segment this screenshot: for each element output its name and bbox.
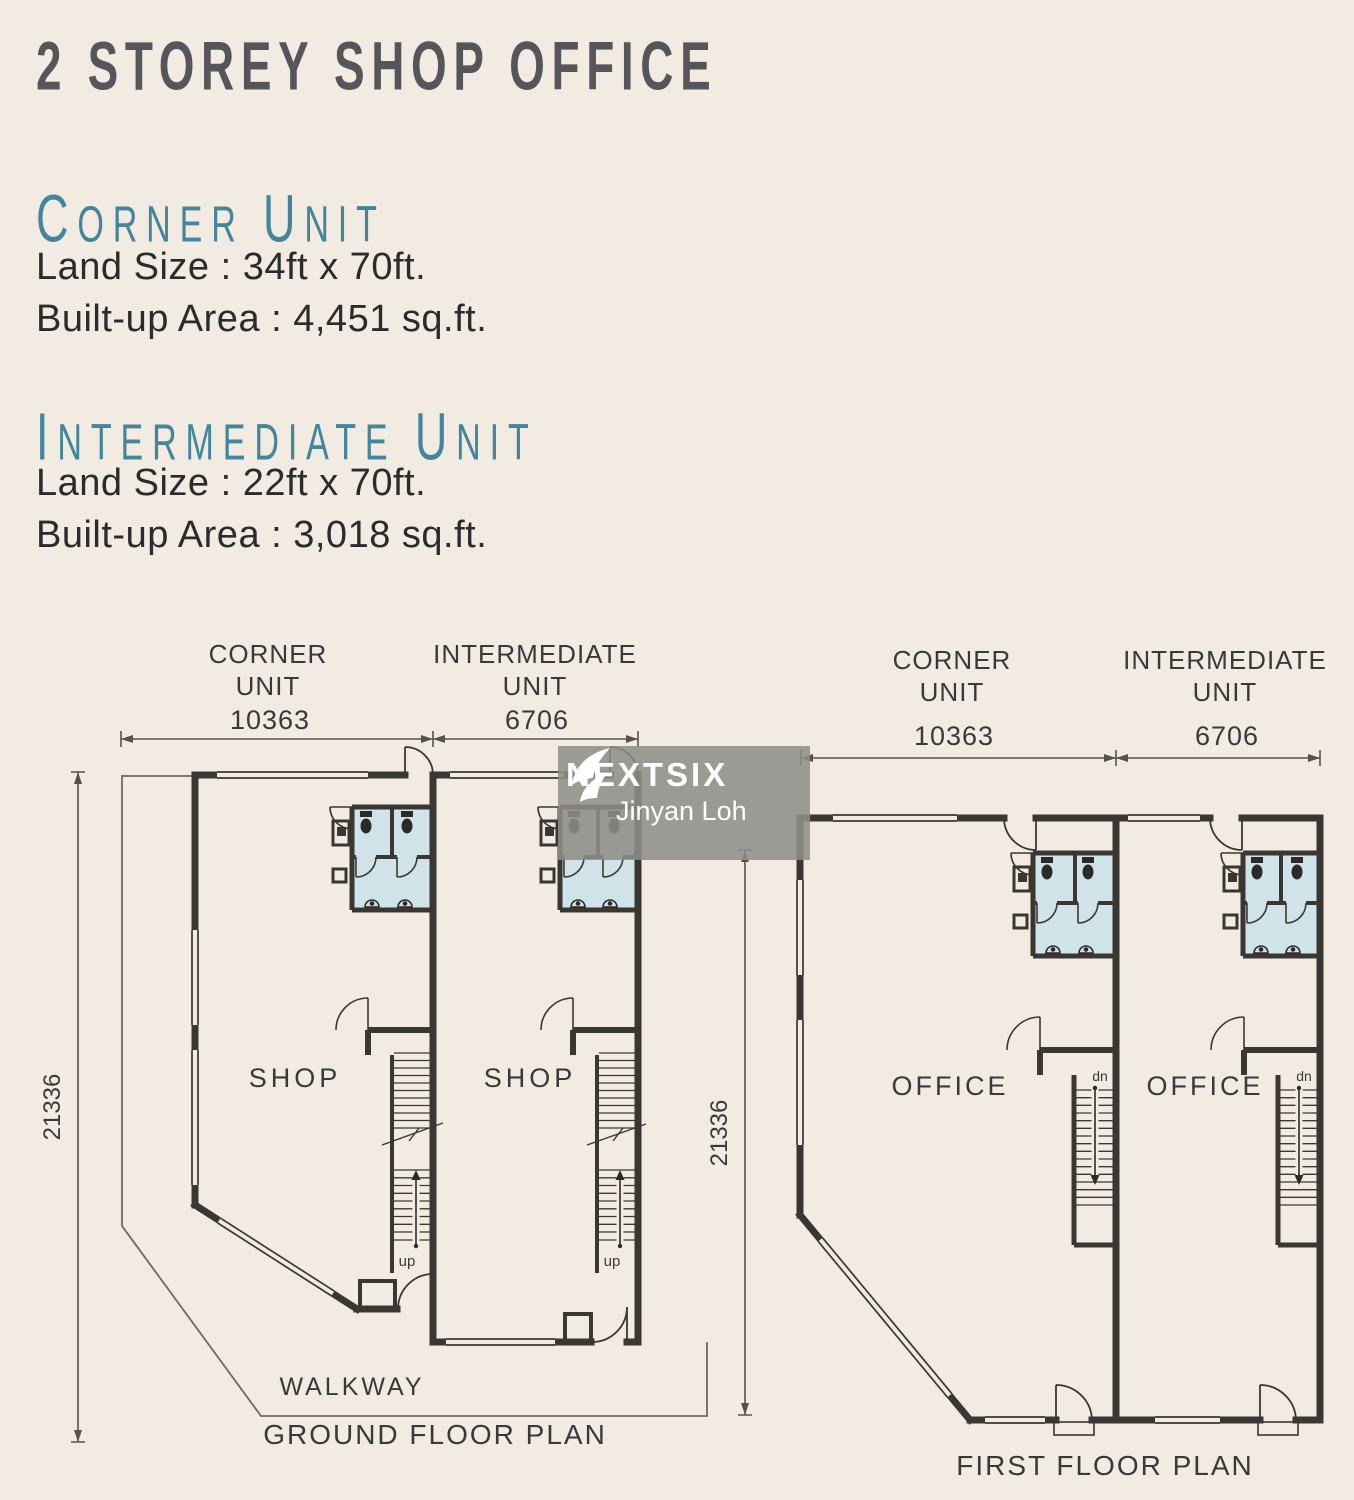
ground-corner-unit-label-line1: CORNER <box>209 639 328 669</box>
ground-intermediate-staircase: up <box>541 998 646 1342</box>
first-corner-room-label: OFFICE <box>892 1071 1009 1101</box>
first-corner-stair-direction: dn <box>1092 1068 1108 1084</box>
ground-intermediate-unit-label-line1: INTERMEDIATE <box>433 639 637 669</box>
floorplan-brochure-page: 2 STOREY SHOP OFFICE CORNER UNIT Land Si… <box>0 0 1354 1500</box>
ground-plan-headers: CORNER UNIT INTERMEDIATE UNIT 10363 6706 <box>209 639 637 735</box>
nextsix-logo-icon <box>564 747 626 803</box>
first-depth-dim: 21336 <box>706 1100 733 1167</box>
ground-corner-staircase: up <box>336 998 443 1309</box>
first-plan-headers: CORNER UNIT INTERMEDIATE UNIT 10363 6706 <box>893 645 1327 751</box>
ground-intermediate-unit-label-line2: UNIT <box>503 671 568 701</box>
first-intermediate-staircase: dn <box>1211 1017 1320 1245</box>
first-intermediate-stair-direction: dn <box>1296 1068 1312 1084</box>
first-corner-unit-label-line1: CORNER <box>893 645 1012 675</box>
intermediate-unit-built-up: Built-up Area : 3,018 sq.ft. <box>36 514 487 557</box>
ground-intermediate-stair-direction: up <box>604 1253 621 1270</box>
ground-corner-unit-label-line2: UNIT <box>236 671 301 701</box>
first-intermediate-unit-label-line2: UNIT <box>1193 677 1258 707</box>
first-intermediate-unit-label-line1: INTERMEDIATE <box>1123 645 1327 675</box>
first-horizontal-dimension-line <box>801 750 1320 766</box>
ground-corner-width-dim: 10363 <box>230 705 310 735</box>
intermediate-unit-land-size: Land Size : 22ft x 70ft. <box>36 462 426 505</box>
corner-unit-land-size: Land Size : 34ft x 70ft. <box>36 246 426 289</box>
ground-floor-plan-title: GROUND FLOOR PLAN <box>135 1419 735 1451</box>
watermark: NEXTSIX Jinyan Loh <box>558 746 810 860</box>
first-front-doors <box>1054 1385 1298 1435</box>
ground-corner-room-label: SHOP <box>249 1063 342 1093</box>
intermediate-unit-heading: INTERMEDIATE UNIT <box>36 398 714 468</box>
ground-walkway-label: WALKWAY <box>279 1373 424 1401</box>
corner-unit-heading: CORNER UNIT <box>36 180 509 250</box>
first-corner-unit-label-line2: UNIT <box>920 677 985 707</box>
first-windows <box>796 814 1220 1425</box>
ground-corner-stair-direction: up <box>399 1253 416 1270</box>
ground-intermediate-width-dim: 6706 <box>505 705 569 735</box>
first-corner-staircase: dn <box>1007 1017 1116 1245</box>
ground-depth-dim: 21336 <box>39 1074 66 1141</box>
first-floor-plan-title: FIRST FLOOR PLAN <box>805 1450 1354 1482</box>
first-intermediate-room-label: OFFICE <box>1147 1071 1264 1101</box>
first-intermediate-width-dim: 6706 <box>1195 721 1259 751</box>
corner-unit-built-up: Built-up Area : 4,451 sq.ft. <box>36 298 487 341</box>
watermark-agent: Jinyan Loh <box>616 796 810 827</box>
ground-intermediate-room-label: SHOP <box>484 1063 577 1093</box>
first-corner-width-dim: 10363 <box>914 721 994 751</box>
page-title: 2 STOREY SHOP OFFICE <box>36 28 957 99</box>
first-rear-doors <box>1004 818 1242 850</box>
page-title-text: 2 STOREY SHOP OFFICE <box>36 28 717 106</box>
ground-vertical-dimension-line: 21336 <box>39 772 85 1442</box>
first-vertical-dimension-line: 21336 <box>706 850 752 1415</box>
